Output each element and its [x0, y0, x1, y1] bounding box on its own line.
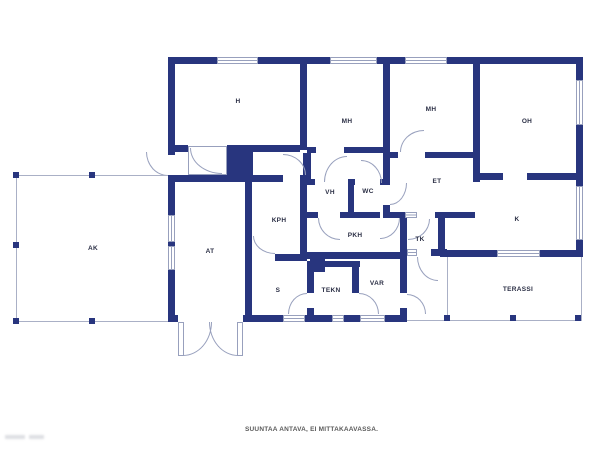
- window-at-1: [168, 215, 175, 242]
- wall-west-upper: [168, 57, 175, 146]
- wall-oh-bottom-b: [527, 173, 583, 180]
- carport-post: [89, 172, 95, 178]
- wall-tk-left: [400, 218, 407, 252]
- wall-tk-bottom: [431, 249, 447, 256]
- window-k: [576, 186, 583, 240]
- wall-h-bottom-a: [168, 145, 188, 152]
- terrace-post: [575, 315, 581, 321]
- wall-k-left: [438, 218, 445, 252]
- carport-post: [89, 318, 95, 324]
- room-label-vh: VH: [325, 190, 335, 197]
- carport-post: [13, 242, 19, 248]
- window-mh1: [330, 57, 377, 64]
- wall-corridor-a: [307, 179, 315, 185]
- room-label-mh-2: MH: [426, 107, 437, 114]
- door-arc-wc: [361, 160, 382, 183]
- wall-mh2-bottom-b: [425, 152, 480, 158]
- watermark-bar: [29, 435, 44, 439]
- watermark-bar: [5, 435, 25, 439]
- room-label-kph: KPH: [272, 218, 287, 225]
- wall-var-right-stub: [400, 308, 407, 315]
- wall-mh1-mh2: [383, 57, 390, 153]
- wall-bottom-a: [168, 315, 178, 322]
- room-label-et: ET: [433, 179, 442, 186]
- door-arc-vh: [324, 156, 347, 182]
- wall-s-tekn: [307, 263, 314, 293]
- wall-s-tekn-stub: [307, 308, 314, 315]
- room-label-tekn: TEKN: [322, 288, 341, 295]
- carport-edge-left: [16, 175, 17, 322]
- door-arc-pkh-2: [380, 218, 400, 239]
- room-label-wc: WC: [362, 189, 373, 196]
- room-label-h: H: [236, 99, 241, 106]
- room-label-mh-1: MH: [342, 119, 353, 126]
- terrace-post: [444, 315, 450, 321]
- wall-h-mh1: [300, 57, 307, 150]
- wall-spine-mid: [300, 182, 307, 259]
- window-at-2: [168, 246, 175, 270]
- wall-tekn-var: [352, 261, 359, 293]
- room-label-at: AT: [206, 249, 215, 256]
- terrace-door: [497, 250, 540, 257]
- room-label-pkh: PKH: [348, 233, 363, 240]
- wall-oh-bottom-a: [477, 173, 503, 180]
- carport-post: [13, 318, 19, 324]
- disclaimer-caption: SUUNTAA ANTAVA, EI MITTAKAAVASSA.: [245, 427, 378, 434]
- window-var: [360, 315, 385, 322]
- wall-vh-wc: [348, 185, 354, 212]
- door-arc-s-tekn: [288, 293, 307, 314]
- terrace-post: [510, 315, 516, 321]
- window-mh2: [405, 57, 447, 64]
- wall-at-kph: [245, 182, 252, 315]
- wall-mh2-oh: [473, 57, 480, 182]
- room-label-tk: TK: [415, 237, 424, 244]
- room-label-var: VAR: [370, 281, 384, 288]
- door-arc-s: [253, 236, 275, 254]
- door-arc-garage-right: [209, 322, 238, 356]
- wall-hall-bottom: [168, 175, 283, 182]
- watermark: [5, 435, 48, 440]
- door-arc-tk-porch: [417, 257, 438, 281]
- room-label-ak: AK: [88, 246, 98, 253]
- wall-mh2-bottom-a: [390, 152, 398, 158]
- door-arc-mh2: [400, 130, 424, 152]
- wall-s-top: [275, 254, 307, 261]
- wall-pkh-top-b: [340, 212, 380, 218]
- window-et-tk: [405, 212, 417, 218]
- door-arc-west-exit: [146, 152, 168, 176]
- window-oh: [576, 80, 583, 125]
- room-label-s: S: [276, 288, 281, 295]
- room-label-terassi: TERASSI: [503, 287, 533, 294]
- door-arc-garage-left: [183, 322, 212, 356]
- door-arc-pkh-1: [318, 218, 340, 240]
- door-arc-var-porch: [407, 294, 426, 314]
- room-label-k: K: [515, 217, 520, 224]
- window-tk-porch: [407, 249, 417, 256]
- carport-post: [13, 172, 19, 178]
- window-tekn: [332, 315, 344, 322]
- wall-mh1-bottom-b: [344, 147, 383, 153]
- room-label-oh: OH: [522, 119, 532, 126]
- wall-pkh-top-a: [300, 212, 318, 218]
- terrace-edge-bottom: [407, 320, 582, 321]
- wall-mh1-bottom-a: [307, 147, 316, 153]
- terrace-edge-left: [447, 257, 448, 321]
- floor-plan: H MH MH OH AK AT KPH VH WC ET K PKH TK S…: [0, 0, 600, 450]
- window-s: [283, 315, 305, 322]
- window-h: [217, 57, 258, 64]
- door-arc-et: [390, 183, 407, 205]
- wall-var-right: [400, 259, 407, 293]
- door-arc-tekn-var: [359, 293, 379, 314]
- terrace-edge-right: [581, 257, 582, 321]
